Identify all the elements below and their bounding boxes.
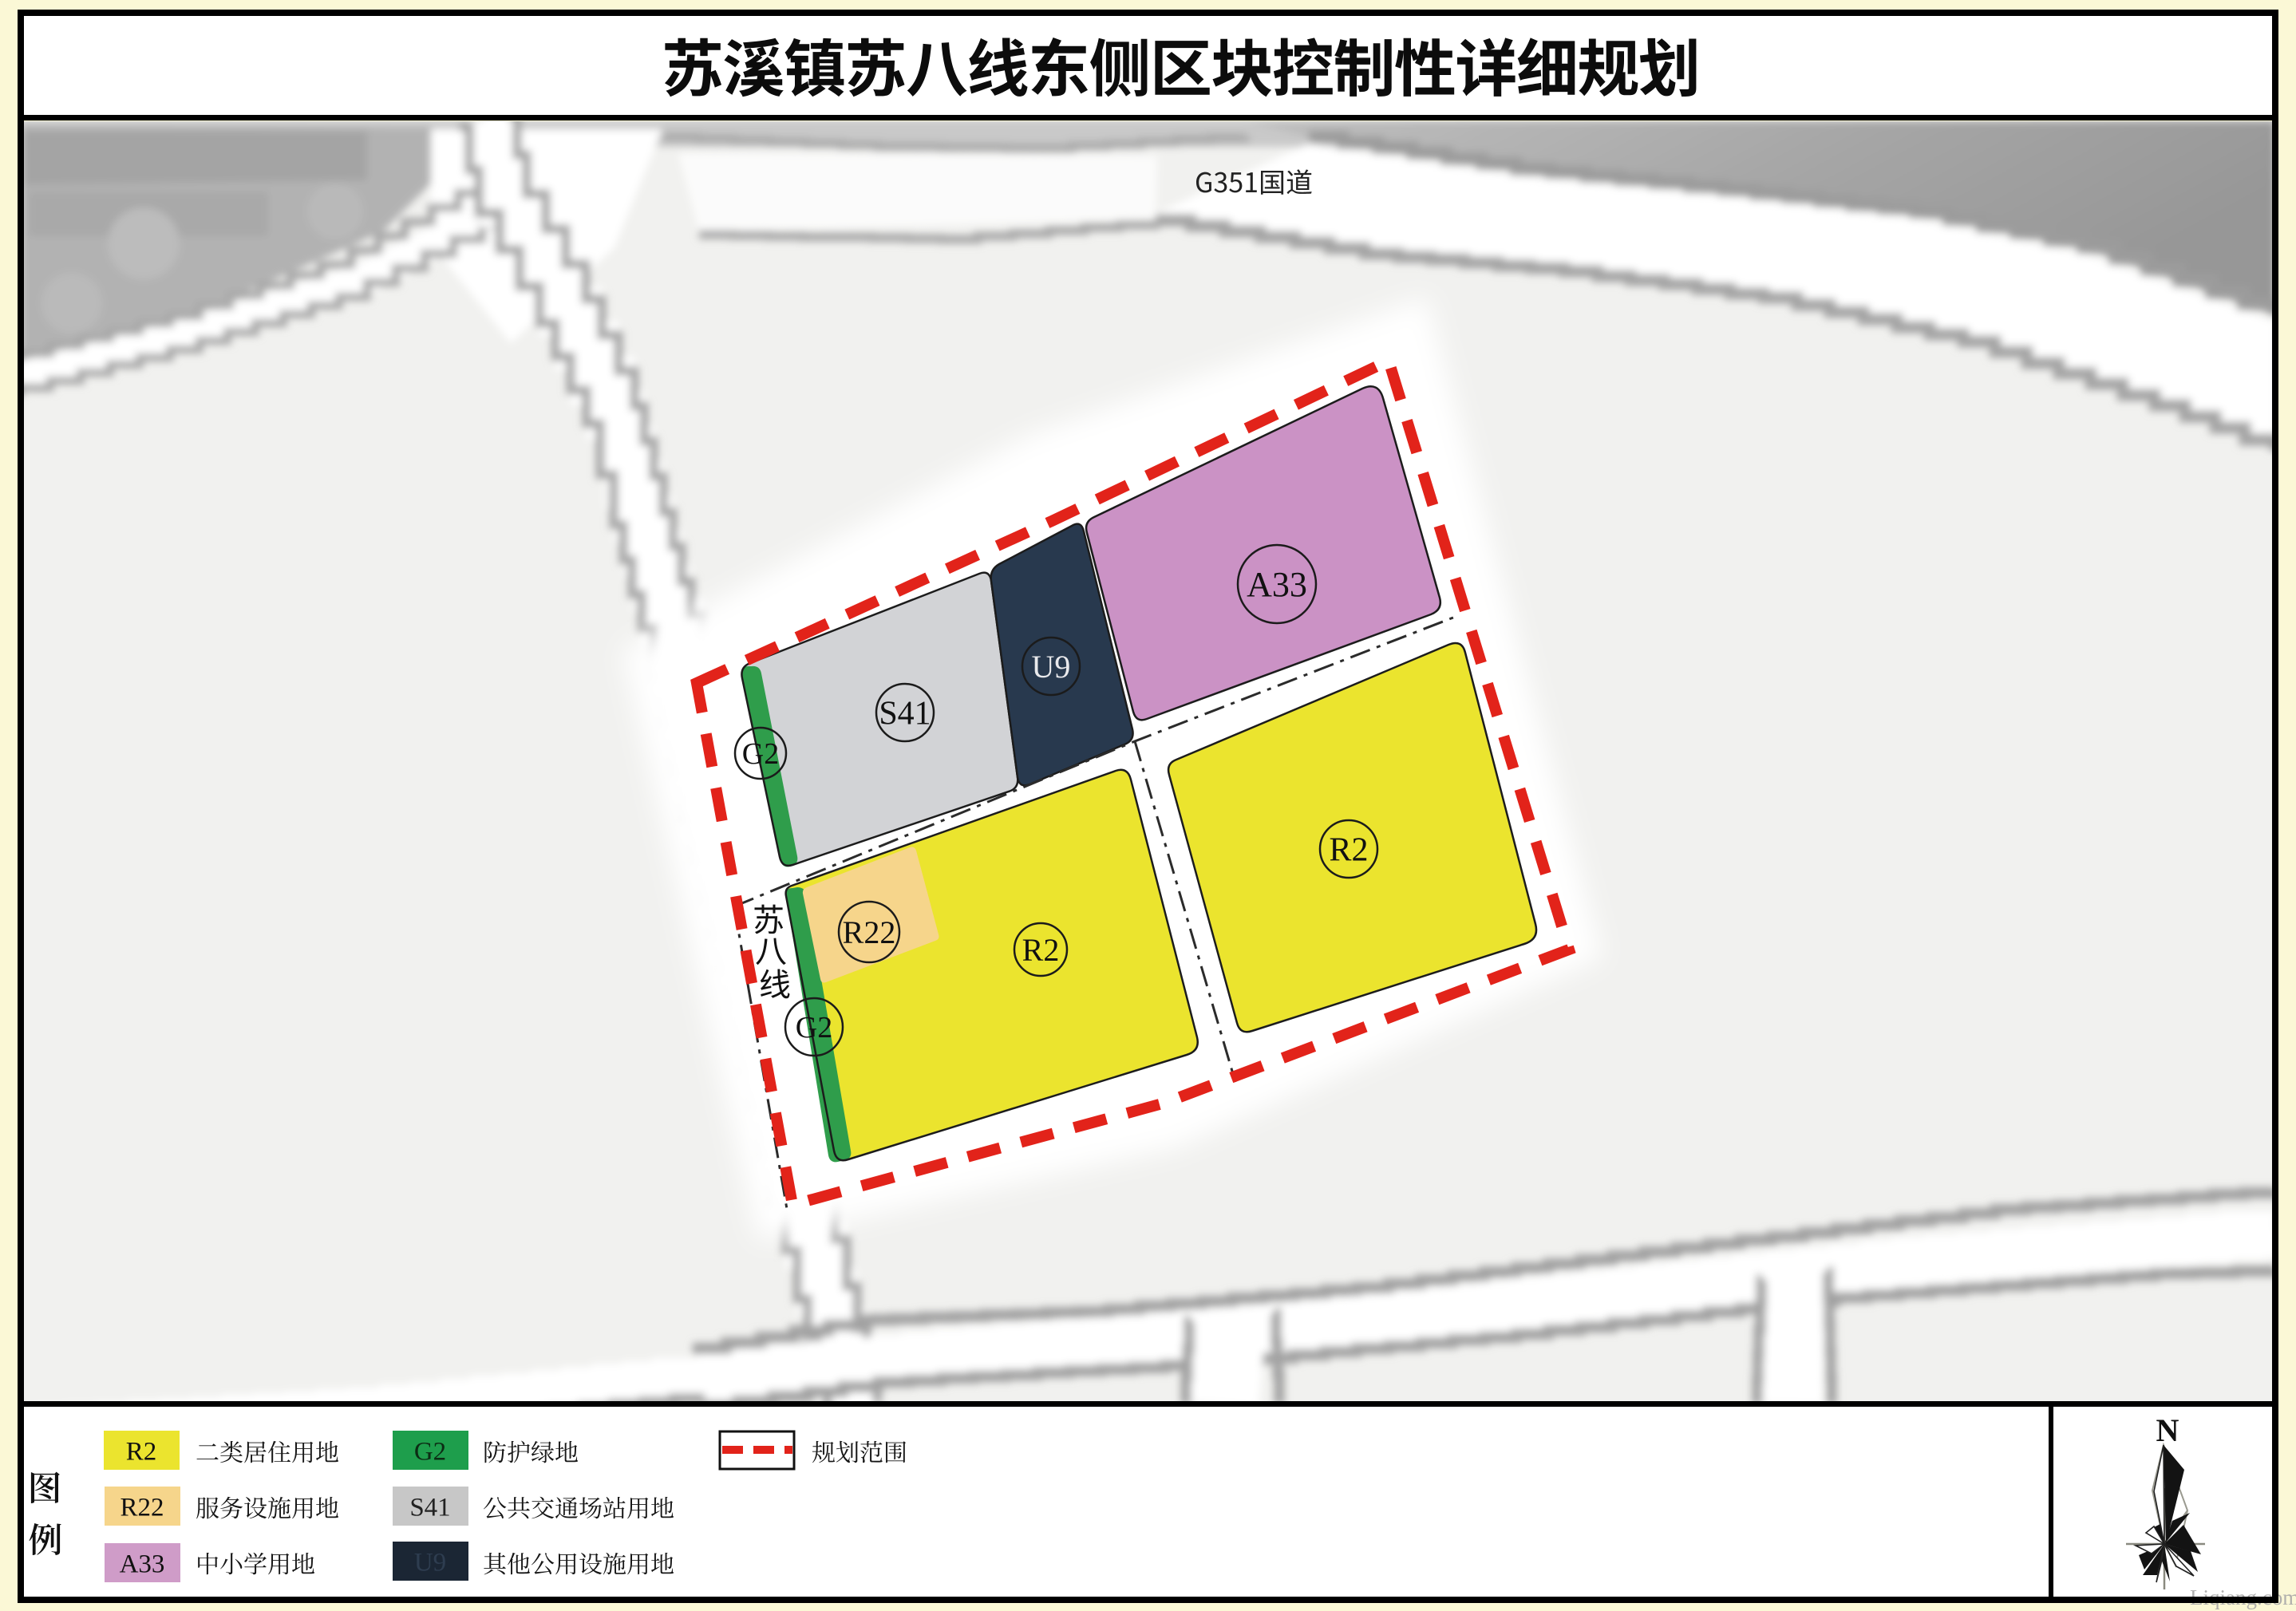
svg-text:R2: R2 <box>1022 932 1060 968</box>
svg-text:G2: G2 <box>414 1437 446 1466</box>
svg-text:U9: U9 <box>414 1548 446 1577</box>
svg-text:S41: S41 <box>409 1493 450 1522</box>
svg-text:R22: R22 <box>843 914 896 950</box>
svg-text:A33: A33 <box>120 1550 165 1578</box>
svg-text:N: N <box>2156 1412 2179 1448</box>
svg-text:G2: G2 <box>796 1011 832 1044</box>
svg-text:S41: S41 <box>879 695 931 732</box>
svg-text:A33: A33 <box>1247 565 1307 604</box>
svg-text:G2: G2 <box>742 737 779 771</box>
svg-text:U9: U9 <box>1032 649 1071 685</box>
svg-text:R2: R2 <box>1329 831 1368 868</box>
svg-text:R2: R2 <box>126 1437 157 1466</box>
svg-text:R22: R22 <box>120 1493 164 1522</box>
